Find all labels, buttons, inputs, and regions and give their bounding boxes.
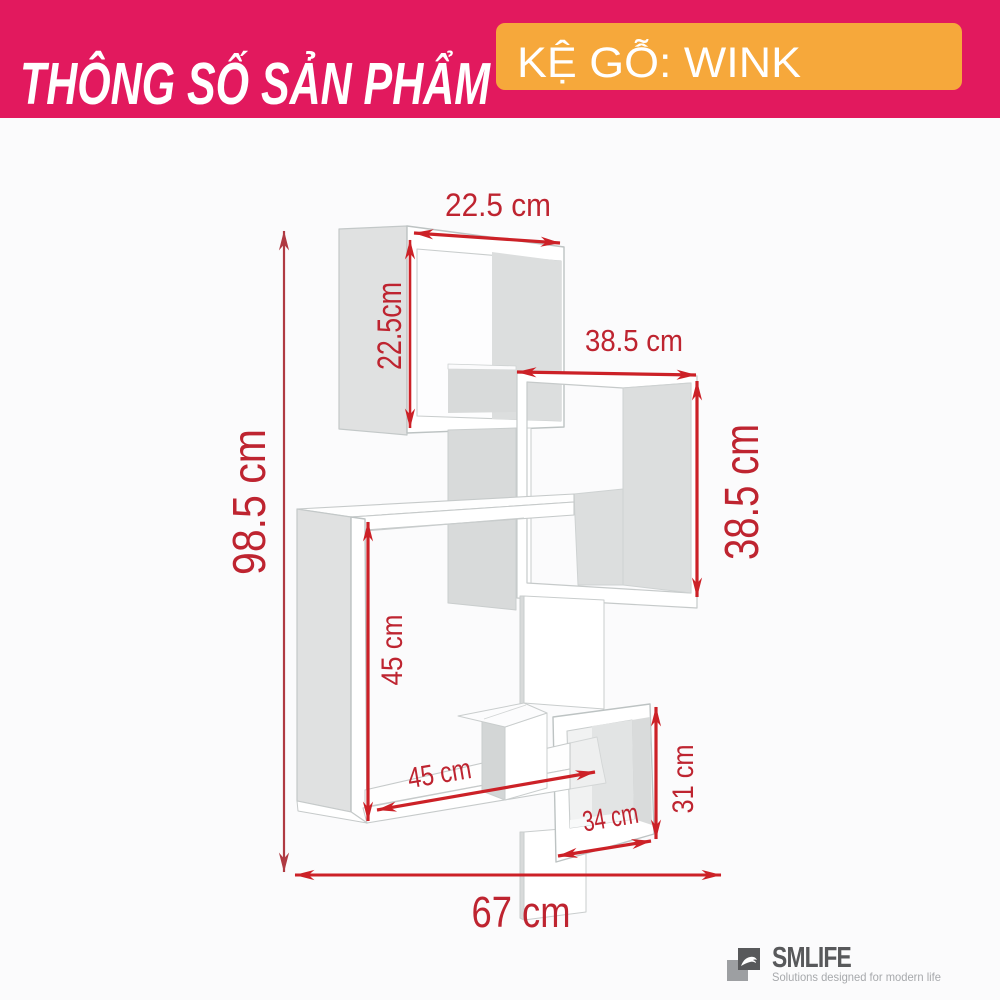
svg-text:38.5 cm: 38.5 cm <box>716 424 769 560</box>
svg-text:38.5 cm: 38.5 cm <box>585 323 683 358</box>
svg-text:22.5cm: 22.5cm <box>371 282 409 370</box>
svg-text:31 cm: 31 cm <box>667 745 700 814</box>
svg-text:22.5 cm: 22.5 cm <box>445 187 551 223</box>
svg-text:98.5 cm: 98.5 cm <box>223 429 275 575</box>
svg-text:45 cm: 45 cm <box>376 615 409 686</box>
svg-text:67 cm: 67 cm <box>472 888 571 937</box>
svg-text:THÔNG SỐ SẢN PHẨM: THÔNG SỐ SẢN PHẨM <box>20 50 491 117</box>
svg-text:KỆ GỖ: WINK: KỆ GỖ: WINK <box>517 38 801 87</box>
svg-text:Solutions designed for modern: Solutions designed for modern life <box>772 970 941 984</box>
